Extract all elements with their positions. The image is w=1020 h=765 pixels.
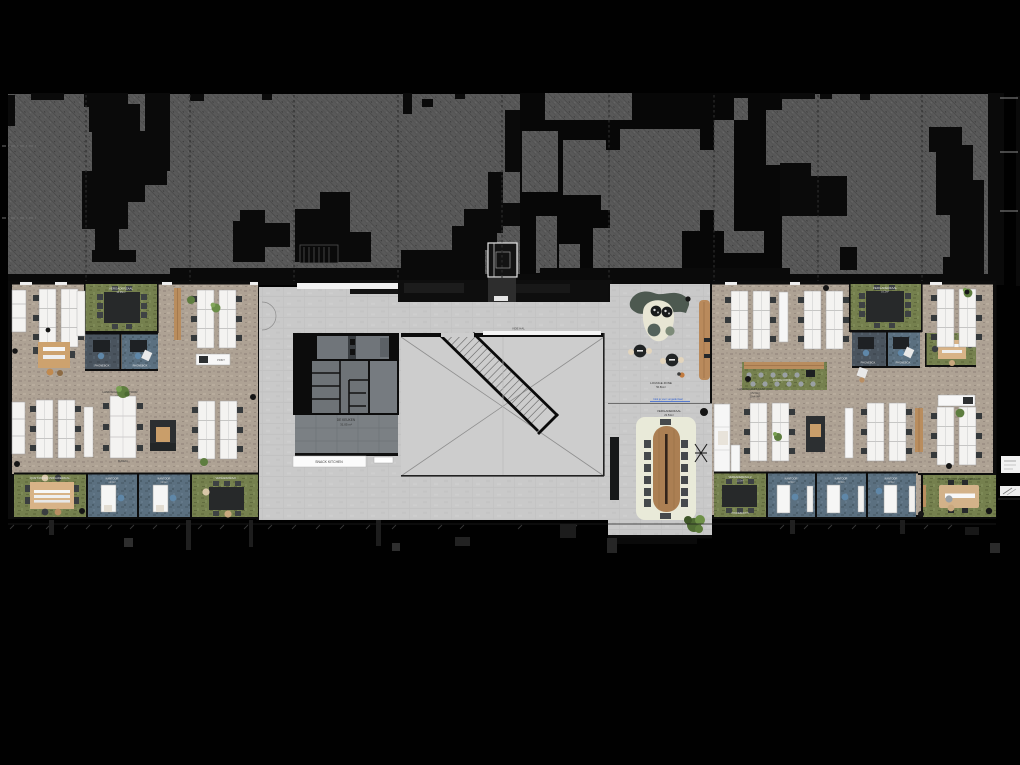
svg-text:QUIET ROOM / VERGADERZAAL: QUIET ROOM / VERGADERZAAL <box>30 476 70 480</box>
svg-text:12.0m²: 12.0m² <box>160 481 167 484</box>
svg-text:VERGADERZAAL: VERGADERZAAL <box>109 287 134 291</box>
svg-text:14.95m²: 14.95m² <box>116 291 125 294</box>
svg-text:12.0m²: 12.0m² <box>108 481 115 484</box>
svg-text:SNACK KITCHEN: SNACK KITCHEN <box>315 460 343 464</box>
svg-text:blok je voor vergaderzaal: blok je voor vergaderzaal <box>654 397 683 401</box>
svg-text:11.5m²: 11.5m² <box>888 481 895 484</box>
svg-text:VERGADERZAAL: VERGADERZAAL <box>873 286 898 290</box>
svg-text:KOFFIE CORNER: KOFFIE CORNER <box>773 379 793 382</box>
svg-text:KANTOOR: KANTOOR <box>158 477 171 481</box>
svg-text:16.2m²: 16.2m² <box>881 291 889 294</box>
svg-text:KANTOOR: KANTOOR <box>885 477 898 481</box>
svg-text:11.0m²: 11.0m² <box>737 479 744 482</box>
svg-text:PRINT: PRINT <box>217 358 225 362</box>
svg-text:PHONEBOX: PHONEBOX <box>133 364 148 368</box>
svg-text:VERGADERZAAL 2: VERGADERZAAL 2 <box>728 475 752 479</box>
svg-text:PHONEBOX: PHONEBOX <box>861 361 876 365</box>
svg-text:11.5m²: 11.5m² <box>838 481 845 484</box>
svg-text:172.9m²: 172.9m² <box>750 391 760 395</box>
svg-text:KANTOOR: KANTOOR <box>835 477 848 481</box>
svg-text:23.54m²: 23.54m² <box>664 413 674 417</box>
svg-text:KANTOOR: KANTOOR <box>785 477 798 481</box>
svg-text:DE KEUKEN: DE KEUKEN <box>337 418 356 422</box>
svg-text:31.05 m²: 31.05 m² <box>340 423 352 427</box>
svg-text:PHONEBOX: PHONEBOX <box>896 361 911 365</box>
svg-text:QUIET ROOM / VERGADERZAAL: QUIET ROOM / VERGADERZAAL <box>938 477 981 481</box>
svg-text:11.5m²: 11.5m² <box>788 481 795 484</box>
svg-text:BUREAU: BUREAU <box>118 460 128 463</box>
svg-text:18.0m²: 18.0m² <box>955 481 963 484</box>
svg-text:PHONEBOOTH: PHONEBOOTH <box>731 512 748 515</box>
svg-text:PHONEBOX: PHONEBOX <box>95 364 110 368</box>
svg-text:LANDSCHAPSKANTOOR: LANDSCHAPSKANTOOR <box>737 387 773 391</box>
svg-text:20+4 WP: 20+4 WP <box>750 395 761 399</box>
svg-text:VERGADERZAAL: VERGADERZAAL <box>657 409 682 413</box>
svg-text:VERGADERZAAL: VERGADERZAAL <box>215 476 237 480</box>
svg-text:56.81m²: 56.81m² <box>656 385 666 389</box>
svg-text:LOUNGE ZONE: LOUNGE ZONE <box>650 381 672 385</box>
svg-text:VIDE HAL: VIDE HAL <box>512 327 525 331</box>
svg-text:KANTOOR: KANTOOR <box>106 477 119 481</box>
